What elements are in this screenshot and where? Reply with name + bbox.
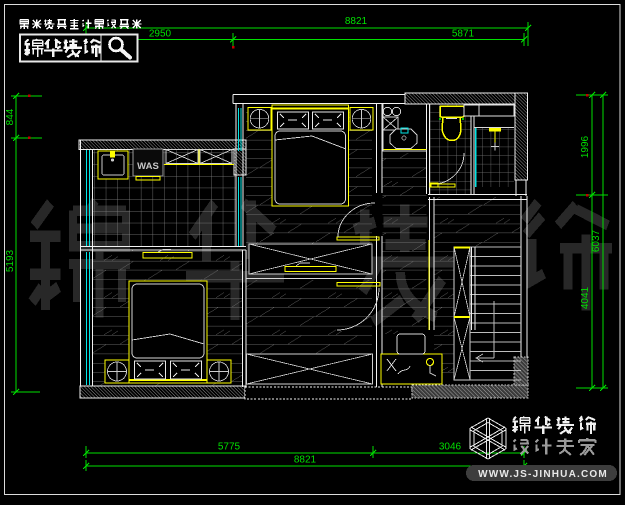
svg-text:5775: 5775 [218,442,241,453]
svg-text:WWW.JS-JINHUA.COM: WWW.JS-JINHUA.COM [478,469,608,480]
svg-text:WAS: WAS [137,161,159,172]
svg-text:4041: 4041 [580,286,591,309]
svg-text:8821: 8821 [294,455,317,466]
svg-text:2950: 2950 [149,29,172,40]
svg-text:844: 844 [5,108,16,125]
svg-text:3046: 3046 [439,442,462,453]
svg-text:5193: 5193 [5,249,16,272]
svg-text:1996: 1996 [580,135,591,158]
svg-text:8821: 8821 [345,16,368,27]
svg-text:6037: 6037 [591,229,602,252]
svg-text:5871: 5871 [452,29,475,40]
